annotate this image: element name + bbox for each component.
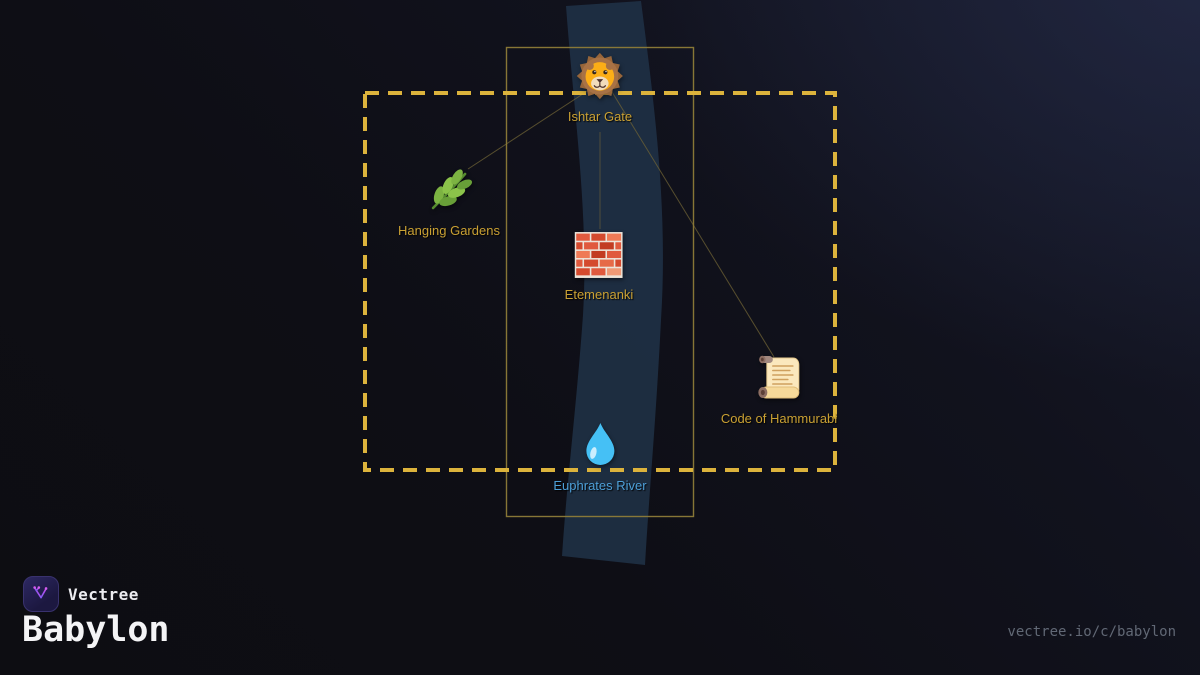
node-label-etemenanki: Etemenanki <box>565 288 634 302</box>
vectree-branch-icon <box>28 581 54 607</box>
node-label-ishtar-gate: Ishtar Gate <box>568 110 632 124</box>
vectree-logo <box>23 576 59 612</box>
brick-emoji-icon <box>575 232 623 278</box>
herb-emoji-icon <box>425 166 473 214</box>
map-node-ishtar-gate[interactable]: Ishtar Gate <box>568 52 632 124</box>
babylon-map-canvas: Ishtar Gate Hanging Gardens <box>0 0 1200 675</box>
map-node-euphrates-river[interactable]: Euphrates River <box>553 421 646 493</box>
share-url: vectree.io/c/babylon <box>1007 624 1176 640</box>
node-label-code-of-hammurabi: Code of Hammurabi <box>721 412 837 426</box>
node-label-euphrates-river: Euphrates River <box>553 479 646 493</box>
lion-emoji-icon <box>576 52 624 100</box>
map-node-code-of-hammurabi[interactable]: Code of Hammurabi <box>721 354 837 426</box>
map-node-etemenanki[interactable]: Etemenanki <box>565 232 634 302</box>
brand-name: Vectree <box>68 585 139 604</box>
scroll-emoji-icon <box>753 354 805 402</box>
droplet-emoji-icon <box>580 421 620 469</box>
collection-title: Babylon <box>22 610 170 650</box>
map-node-hanging-gardens[interactable]: Hanging Gardens <box>398 166 500 238</box>
node-label-hanging-gardens: Hanging Gardens <box>398 224 500 238</box>
